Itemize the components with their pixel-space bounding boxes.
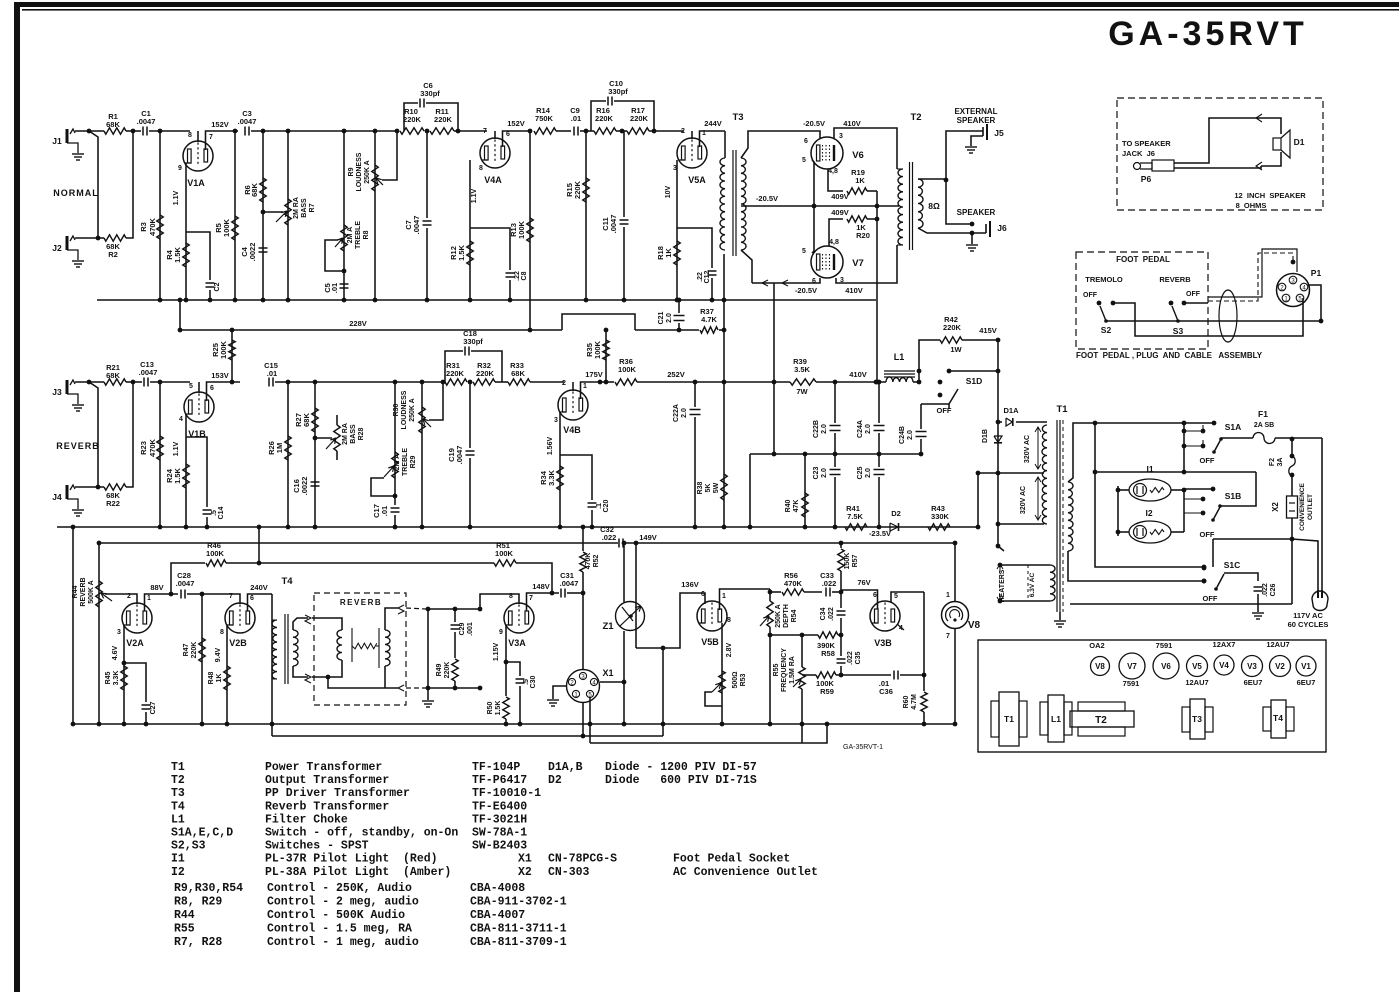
svg-text:R53: R53 (740, 673, 747, 686)
svg-text:T1: T1 (1004, 714, 1014, 724)
svg-text:Foot Pedal Socket: Foot Pedal Socket (673, 853, 790, 866)
svg-text:REVERB: REVERB (80, 577, 87, 606)
svg-text:100K: 100K (219, 340, 228, 359)
svg-text:.0047: .0047 (609, 215, 618, 234)
svg-text:L1: L1 (171, 813, 185, 826)
svg-text:220K: 220K (446, 369, 465, 378)
svg-text:P1: P1 (1311, 268, 1322, 278)
svg-text:9.4V: 9.4V (215, 647, 222, 662)
svg-text:149V: 149V (639, 533, 657, 542)
svg-text:470K: 470K (148, 217, 157, 236)
svg-text:R47: R47 (183, 643, 190, 656)
svg-text:C22B: C22B (813, 420, 820, 438)
svg-text:R45: R45 (105, 671, 112, 684)
svg-text:V2B: V2B (229, 638, 247, 648)
svg-text:T4: T4 (281, 576, 293, 587)
svg-text:TF-P6417: TF-P6417 (472, 774, 527, 787)
svg-text:R44: R44 (174, 909, 195, 922)
svg-text:100K: 100K (517, 220, 526, 239)
svg-text:330K: 330K (931, 512, 950, 521)
svg-text:C8: C8 (521, 271, 528, 280)
svg-text:1.1V: 1.1V (173, 190, 180, 205)
svg-text:Z1: Z1 (602, 621, 614, 632)
svg-text:J4: J4 (52, 492, 62, 502)
svg-text:C29: C29 (459, 622, 466, 635)
svg-text:-23.5V: -23.5V (869, 529, 891, 538)
svg-text:3.5K: 3.5K (794, 365, 810, 374)
svg-text:R9: R9 (348, 167, 355, 176)
svg-text:R20: R20 (856, 231, 870, 240)
svg-text:V4B: V4B (563, 425, 581, 435)
svg-text:PL-37R Pilot Light (Red): PL-37R Pilot Light (Red) (265, 853, 438, 866)
svg-text:J6: J6 (997, 223, 1007, 233)
svg-text:R59: R59 (820, 687, 834, 696)
svg-text:FREQUENCY: FREQUENCY (781, 648, 788, 692)
svg-text:148V: 148V (532, 582, 550, 591)
svg-text:Control - 500K Audio: Control - 500K Audio (267, 909, 405, 922)
svg-text:R38: R38 (697, 481, 704, 494)
svg-text:R52: R52 (593, 554, 600, 567)
svg-text:T1: T1 (171, 761, 185, 774)
svg-text:.0047: .0047 (238, 117, 257, 126)
svg-text:R22: R22 (106, 499, 120, 508)
svg-text:CBA-911-3702-1: CBA-911-3702-1 (470, 896, 567, 909)
svg-text:OFF: OFF (1200, 530, 1215, 539)
svg-text:5: 5 (802, 157, 806, 164)
svg-text:X1: X1 (602, 668, 613, 678)
svg-text:Control - 250K, Audio: Control - 250K, Audio (267, 882, 412, 895)
svg-text:Control - 2 meg, audio: Control - 2 meg, audio (267, 896, 419, 909)
svg-text:.1: .1 (596, 503, 603, 509)
svg-text:7: 7 (229, 593, 233, 600)
svg-text:Reverb Transformer: Reverb Transformer (265, 800, 389, 813)
svg-text:P6: P6 (1141, 174, 1152, 184)
svg-text:220K: 220K (595, 114, 614, 123)
svg-text:2A SB: 2A SB (1254, 422, 1274, 429)
svg-text:1.5K: 1.5K (495, 701, 502, 716)
svg-text:S1C: S1C (1224, 560, 1241, 570)
svg-text:5: 5 (189, 383, 193, 390)
svg-text:TREBLE: TREBLE (355, 221, 362, 249)
svg-text:250K A: 250K A (409, 398, 416, 421)
svg-text:2M A: 2M A (394, 454, 401, 470)
svg-text:R57: R57 (852, 554, 859, 567)
svg-text:Diode - 1200 PIV DI-57: Diode - 1200 PIV DI-57 (605, 761, 757, 774)
svg-text:175V: 175V (585, 370, 603, 379)
svg-text:2: 2 (127, 593, 131, 600)
svg-text:C21: C21 (658, 311, 665, 324)
svg-text:J5: J5 (994, 128, 1004, 138)
svg-text:409V: 409V (831, 208, 849, 217)
svg-text:320V AC: 320V AC (1024, 435, 1031, 463)
svg-text:220K: 220K (403, 115, 422, 124)
svg-text:68K: 68K (106, 120, 120, 129)
svg-text:V7: V7 (1127, 662, 1137, 671)
svg-text:750K: 750K (535, 114, 554, 123)
svg-text:1K: 1K (664, 248, 673, 258)
svg-text:7591: 7591 (1123, 679, 1140, 688)
svg-text:220K: 220K (444, 662, 451, 679)
svg-text:220K: 220K (573, 180, 582, 199)
svg-text:S2: S2 (1101, 325, 1112, 335)
svg-text:2: 2 (681, 128, 685, 135)
svg-text:6: 6 (804, 138, 808, 145)
svg-text:1.56V: 1.56V (547, 437, 554, 456)
svg-text:.022: .022 (822, 579, 837, 588)
svg-text:T1: T1 (1056, 404, 1068, 415)
svg-text:.0047: .0047 (455, 446, 464, 465)
svg-text:.0047: .0047 (560, 579, 579, 588)
svg-text:220K: 220K (476, 369, 495, 378)
svg-text:320V AC: 320V AC (1020, 486, 1027, 514)
svg-text:C23: C23 (813, 466, 820, 479)
svg-text:C36: C36 (879, 687, 893, 696)
svg-text:68K: 68K (511, 369, 525, 378)
svg-text:V8: V8 (968, 620, 981, 631)
svg-text:4.7M: 4.7M (911, 694, 918, 710)
svg-text:220K: 220K (630, 114, 649, 123)
svg-text:1K: 1K (855, 176, 865, 185)
svg-text:CN-78PCG-S: CN-78PCG-S (548, 853, 617, 866)
svg-text:R7, R28: R7, R28 (174, 936, 222, 949)
svg-text:47K: 47K (793, 500, 800, 513)
svg-text:153V: 153V (211, 371, 229, 380)
svg-text:S2,S3: S2,S3 (171, 840, 206, 853)
svg-text:R50: R50 (487, 701, 494, 714)
svg-text:.0047: .0047 (137, 117, 156, 126)
svg-text:1.5K: 1.5K (173, 467, 182, 483)
svg-text:TF-E6400: TF-E6400 (472, 800, 527, 813)
svg-text:V3: V3 (1247, 662, 1257, 671)
svg-text:500K A: 500K A (88, 580, 95, 603)
svg-text:C27: C27 (150, 701, 157, 714)
svg-text:GA-35RVT: GA-35RVT (1108, 15, 1308, 53)
svg-text:S1B: S1B (1225, 491, 1242, 501)
svg-text:V5A: V5A (688, 175, 706, 185)
svg-text:9: 9 (499, 629, 503, 636)
svg-text:410V: 410V (845, 286, 863, 295)
svg-text:C30: C30 (530, 675, 537, 688)
svg-text:10V: 10V (665, 185, 672, 198)
svg-text:252V: 252V (667, 370, 685, 379)
svg-text:12AX7: 12AX7 (1213, 640, 1236, 649)
svg-text:CONVENIENCE: CONVENIENCE (1299, 483, 1306, 531)
svg-text:1K: 1K (216, 674, 223, 683)
svg-text:220K: 220K (434, 115, 453, 124)
svg-text:4: 4 (179, 416, 183, 423)
svg-text:7: 7 (483, 128, 487, 135)
svg-text:R44: R44 (72, 585, 79, 598)
svg-text:2.0: 2.0 (821, 424, 828, 434)
svg-text:J1: J1 (52, 136, 62, 146)
svg-text:C12: C12 (704, 270, 711, 283)
svg-text:V2: V2 (1275, 662, 1285, 671)
svg-text:V7: V7 (852, 258, 864, 269)
svg-text:REVERB: REVERB (1159, 275, 1191, 284)
svg-text:TREBLE: TREBLE (402, 448, 409, 476)
svg-text:OUTLET: OUTLET (1307, 494, 1314, 520)
svg-text:244V: 244V (704, 119, 722, 128)
svg-text:2: 2 (562, 380, 566, 387)
svg-text:68K: 68K (302, 413, 311, 427)
svg-text:J3: J3 (52, 387, 62, 397)
svg-text:5: 5 (802, 248, 806, 255)
svg-text:.001: .001 (467, 622, 474, 636)
svg-text:TF-3021H: TF-3021H (472, 813, 527, 826)
svg-text:Control - 1.5 meg, RA: Control - 1.5 meg, RA (267, 923, 412, 936)
svg-text:R40: R40 (785, 499, 792, 512)
svg-text:6: 6 (210, 385, 214, 392)
svg-text:LOUDNESS: LOUDNESS (401, 390, 408, 429)
svg-text:7591: 7591 (1156, 641, 1173, 650)
svg-text:.0022: .0022 (300, 477, 309, 496)
svg-text:1.5M RA: 1.5M RA (789, 656, 796, 684)
svg-text:OFF: OFF (1186, 291, 1201, 298)
svg-text:220K: 220K (191, 642, 198, 659)
svg-text:CBA-811-3711-1: CBA-811-3711-1 (470, 923, 567, 936)
svg-text:220K: 220K (943, 323, 962, 332)
svg-text:2M RA: 2M RA (342, 423, 349, 445)
svg-text:6: 6 (812, 278, 816, 285)
svg-text:OFF: OFF (937, 406, 952, 415)
svg-text:FOOT PEDAL , PLUG AND CABLE: FOOT PEDAL , PLUG AND CABLE ASSEMBLY (1076, 351, 1263, 360)
svg-text:6EU7: 6EU7 (1297, 678, 1316, 687)
svg-text:D2: D2 (891, 509, 901, 518)
svg-text:76V: 76V (857, 578, 870, 587)
svg-text:2.0: 2.0 (865, 424, 872, 434)
svg-text:D2: D2 (548, 774, 562, 787)
svg-text:1M: 1M (275, 443, 284, 453)
svg-text:240V: 240V (250, 583, 268, 592)
svg-text:V1: V1 (1301, 662, 1311, 671)
svg-text:3: 3 (839, 133, 843, 140)
svg-text:.022: .022 (828, 607, 835, 621)
svg-text:PP Driver Transformer: PP Driver Transformer (265, 787, 410, 800)
svg-text:Control - 1 meg, audio: Control - 1 meg, audio (267, 936, 419, 949)
svg-text:150K: 150K (844, 553, 851, 570)
svg-text:R48: R48 (208, 671, 215, 684)
svg-text:R3: R3 (139, 222, 148, 232)
svg-text:8: 8 (220, 629, 224, 636)
svg-text:-20.5V: -20.5V (803, 119, 825, 128)
svg-text:228V: 228V (349, 319, 367, 328)
svg-text:OFF: OFF (1083, 292, 1098, 299)
svg-text:-20.5V: -20.5V (756, 194, 778, 203)
svg-text:CBA-4007: CBA-4007 (470, 909, 525, 922)
svg-text:T3: T3 (1192, 714, 1202, 724)
svg-text:NORMAL: NORMAL (53, 188, 99, 198)
svg-text:R58: R58 (821, 649, 835, 658)
svg-text:2M RA: 2M RA (293, 197, 300, 219)
svg-text:7: 7 (946, 633, 950, 640)
svg-text:C24A: C24A (857, 420, 864, 438)
svg-text:SW-78A-1: SW-78A-1 (472, 827, 527, 840)
svg-text:C2: C2 (214, 282, 221, 291)
svg-text:T3: T3 (171, 787, 185, 800)
svg-text:470K: 470K (148, 438, 157, 457)
svg-text:CN-303: CN-303 (548, 866, 590, 879)
svg-text:EXTERNAL: EXTERNAL (954, 107, 997, 116)
svg-text:2.0: 2.0 (681, 408, 688, 418)
svg-text:2M A: 2M A (347, 227, 354, 243)
svg-text:V1A: V1A (187, 178, 205, 188)
svg-text:V2A: V2A (126, 638, 144, 648)
svg-text:152V: 152V (507, 119, 525, 128)
svg-text:330pf: 330pf (608, 87, 628, 96)
svg-text:X1: X1 (518, 853, 532, 866)
svg-text:T4: T4 (1273, 713, 1283, 723)
svg-text:D1A,B: D1A,B (548, 761, 583, 774)
svg-text:S1D: S1D (966, 376, 983, 386)
svg-text:AC Convenience Outlet: AC Convenience Outlet (673, 866, 818, 879)
svg-text:CBA-811-3709-1: CBA-811-3709-1 (470, 936, 567, 949)
svg-text:L1: L1 (1051, 714, 1061, 724)
svg-text:R9,R30,R54: R9,R30,R54 (174, 882, 243, 895)
svg-text:L1: L1 (894, 352, 905, 362)
svg-text:8: 8 (188, 132, 192, 139)
svg-text:C26: C26 (1270, 583, 1277, 596)
svg-text:100K: 100K (618, 365, 637, 374)
svg-text:Filter Choke: Filter Choke (265, 813, 348, 826)
svg-text:1: 1 (722, 593, 726, 600)
svg-text:BASS: BASS (350, 424, 357, 444)
svg-text:410V: 410V (843, 119, 861, 128)
svg-text:Switch - off, standby, on-On: Switch - off, standby, on-On (265, 827, 458, 840)
svg-text:TO SPEAKER: TO SPEAKER (1122, 139, 1171, 148)
svg-text:R23: R23 (139, 441, 148, 455)
svg-text:V3A: V3A (508, 638, 526, 648)
svg-text:R60: R60 (903, 695, 910, 708)
svg-text:C25: C25 (857, 466, 864, 479)
svg-text:R8: R8 (363, 230, 370, 239)
svg-text:OA2: OA2 (1089, 641, 1104, 650)
svg-text:T2: T2 (171, 774, 185, 787)
svg-text:4,8: 4,8 (828, 168, 838, 175)
svg-text:R8, R29: R8, R29 (174, 896, 222, 909)
svg-text:X2: X2 (518, 866, 532, 879)
svg-text:8: 8 (509, 593, 513, 600)
svg-text:117V AC: 117V AC (1293, 611, 1323, 620)
svg-text:.01: .01 (267, 369, 277, 378)
svg-text:88V: 88V (150, 583, 163, 592)
svg-text:F2: F2 (1269, 458, 1276, 466)
svg-text:TF-104P: TF-104P (472, 761, 520, 774)
svg-text:3: 3 (117, 629, 121, 636)
svg-text:V5: V5 (1192, 662, 1202, 671)
svg-text:R49: R49 (436, 663, 443, 676)
svg-text:D1A: D1A (1003, 406, 1019, 415)
svg-text:6.3V AC: 6.3V AC (1029, 573, 1036, 598)
svg-text:C34: C34 (820, 607, 827, 620)
svg-text:I1: I1 (171, 853, 185, 866)
svg-text:C20: C20 (603, 499, 610, 512)
svg-text:.0047: .0047 (176, 579, 195, 588)
svg-text:.0047: .0047 (139, 368, 158, 377)
svg-text:330pf: 330pf (463, 337, 483, 346)
svg-text:V6: V6 (1161, 662, 1171, 671)
svg-text:R2: R2 (108, 250, 118, 259)
svg-text:R29: R29 (410, 455, 417, 468)
svg-text:6: 6 (506, 131, 510, 138)
svg-text:1.1V: 1.1V (471, 188, 478, 203)
svg-text:LOUDNESS: LOUDNESS (356, 152, 363, 191)
svg-text:8Ω: 8Ω (928, 201, 940, 211)
svg-text:T2: T2 (1095, 715, 1107, 726)
svg-text:1.5K: 1.5K (457, 244, 466, 260)
svg-text:100K: 100K (222, 218, 231, 237)
svg-text:TF-10010-1: TF-10010-1 (472, 787, 541, 800)
svg-text:.0047: .0047 (412, 216, 421, 235)
svg-text:REVERB: REVERB (56, 441, 100, 451)
svg-text:12 INCH SPEAKER: 12 INCH SPEAKER (1234, 191, 1306, 200)
svg-text:.22: .22 (514, 271, 521, 281)
svg-text:6: 6 (873, 592, 877, 599)
svg-text:R7: R7 (309, 203, 316, 212)
svg-text:2.0: 2.0 (821, 468, 828, 478)
svg-text:2.0: 2.0 (666, 313, 673, 323)
svg-text:7: 7 (529, 595, 533, 602)
svg-text:250K A: 250K A (364, 160, 371, 183)
svg-text:.022: .022 (1262, 583, 1269, 597)
svg-text:6: 6 (250, 595, 254, 602)
svg-text:.0022: .0022 (248, 243, 257, 262)
svg-text:S3: S3 (1173, 326, 1184, 336)
svg-text:.01: .01 (571, 114, 581, 123)
svg-text:8: 8 (479, 165, 483, 172)
svg-text:V4A: V4A (484, 175, 502, 185)
svg-text:100K: 100K (495, 549, 514, 558)
svg-text:I2: I2 (171, 866, 185, 879)
svg-text:12AU7: 12AU7 (1185, 678, 1208, 687)
svg-text:OFF: OFF (1200, 456, 1215, 465)
svg-text:TREMOLO: TREMOLO (1085, 275, 1123, 284)
svg-text:BASS: BASS (301, 198, 308, 218)
svg-text:136V: 136V (681, 580, 699, 589)
svg-text:1.1V: 1.1V (173, 441, 180, 456)
svg-text:Output Transformer: Output Transformer (265, 774, 389, 787)
svg-text:4,8: 4,8 (829, 239, 839, 246)
svg-text:JACK J6: JACK J6 (1122, 149, 1155, 158)
svg-text:5: 5 (894, 593, 898, 600)
svg-text:1: 1 (583, 383, 587, 390)
svg-text:500Ω: 500Ω (732, 671, 739, 688)
svg-text:T4: T4 (171, 800, 185, 813)
svg-text:PL-38A Pilot Light (Amber): PL-38A Pilot Light (Amber) (265, 866, 451, 879)
svg-text:8 OHMS: 8 OHMS (1236, 201, 1267, 210)
svg-text:Power Transformer: Power Transformer (265, 761, 382, 774)
svg-text:250K A: 250K A (775, 604, 782, 627)
svg-text:SPEAKER: SPEAKER (957, 208, 996, 217)
svg-text:R30: R30 (393, 403, 400, 416)
svg-text:R28: R28 (358, 427, 365, 440)
svg-text:5K: 5K (705, 484, 712, 493)
svg-text:3: 3 (554, 417, 558, 424)
svg-text:V4: V4 (1219, 661, 1229, 670)
svg-text:100K: 100K (593, 340, 602, 359)
svg-text:-20.5V: -20.5V (795, 286, 817, 295)
svg-text:1.5K: 1.5K (173, 246, 182, 262)
svg-text:4.7K: 4.7K (701, 315, 717, 324)
svg-text:I1: I1 (1146, 464, 1153, 474)
svg-text:.01: .01 (380, 506, 389, 516)
svg-text:1W: 1W (950, 345, 962, 354)
svg-text:D1B: D1B (982, 429, 989, 443)
svg-text:C35: C35 (855, 651, 862, 664)
svg-text:C14: C14 (218, 506, 225, 519)
svg-text:R54: R54 (791, 609, 798, 622)
svg-text:1.15V: 1.15V (493, 643, 500, 662)
svg-text:100K: 100K (206, 549, 225, 558)
